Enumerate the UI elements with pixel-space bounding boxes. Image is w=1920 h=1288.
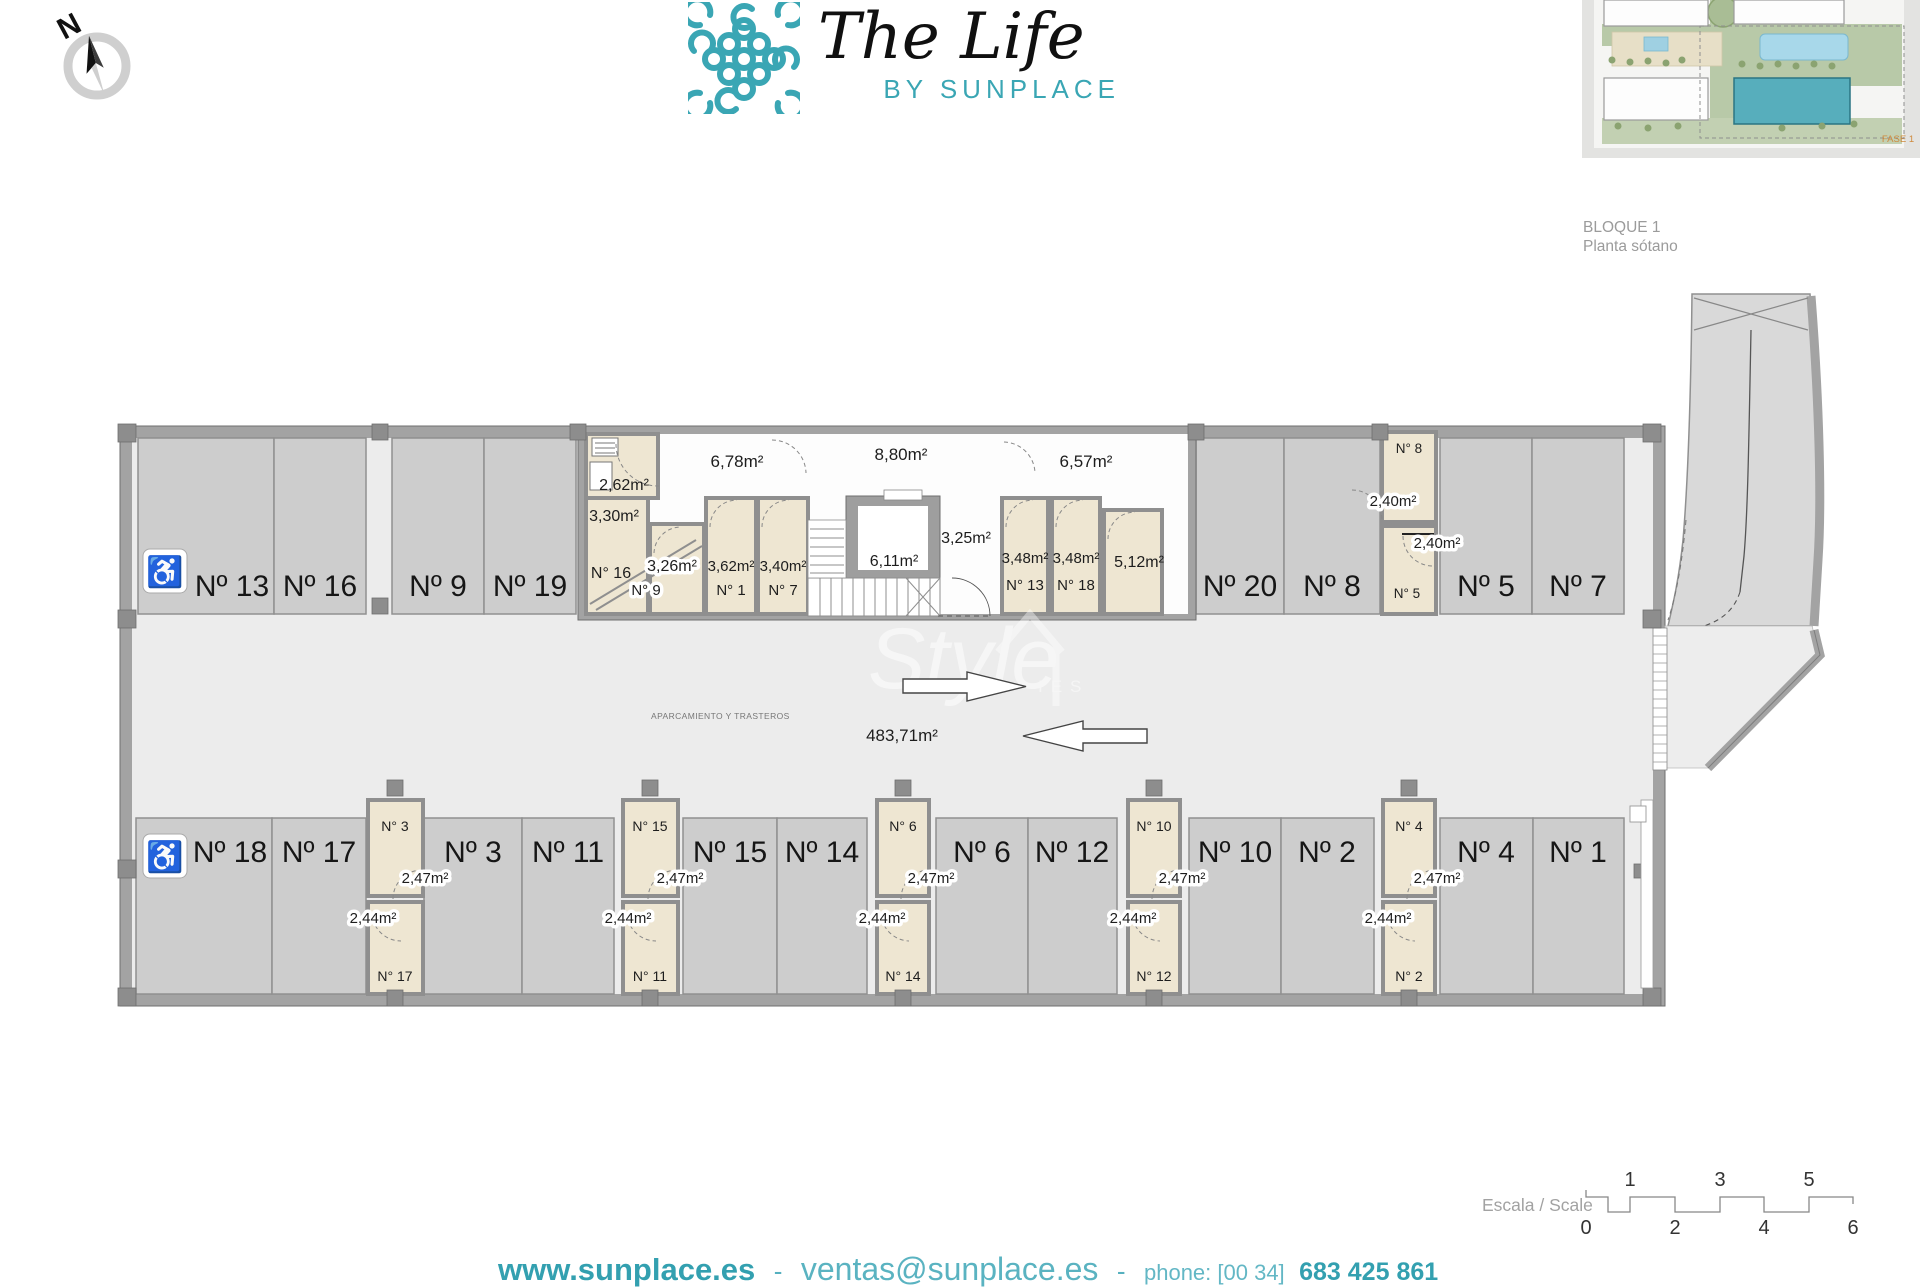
svg-text:2,47m²: 2,47m²	[1159, 870, 1206, 887]
svg-text:6: 6	[1847, 1217, 1858, 1239]
svg-text:N° 16: N° 16	[591, 565, 631, 582]
svg-text:3,48m²: 3,48m²	[1002, 550, 1049, 567]
svg-text:N° 13: N° 13	[1006, 577, 1044, 594]
scale-bar: Escala / Scale 1 3 5 0 2 4 6	[1482, 1169, 1859, 1239]
footer-email: ventas@sunplace.es	[801, 1251, 1099, 1288]
svg-text:6,78m²: 6,78m²	[711, 452, 764, 471]
parking-label: Nº 13	[195, 570, 269, 603]
svg-text:N° 15: N° 15	[632, 818, 667, 834]
svg-text:483,71m²: 483,71m²	[866, 726, 938, 745]
svg-text:4: 4	[1758, 1217, 1769, 1239]
svg-text:2,47m²: 2,47m²	[1414, 870, 1461, 887]
svg-text:N° 18: N° 18	[1057, 577, 1095, 594]
floor-name: Planta sótano	[1583, 237, 1678, 256]
parking-label: Nº 5	[1457, 570, 1515, 603]
svg-text:N° 9: N° 9	[631, 582, 660, 599]
parking-label: Nº 17	[282, 836, 356, 869]
svg-text:IES: IES	[1038, 677, 1089, 696]
svg-text:3,62m²: 3,62m²	[708, 558, 755, 575]
wheelchair-icon: ♿	[146, 839, 183, 874]
brand-logo: The Life BY SUNPLACE	[688, 2, 1120, 114]
handicap-badge-bottom: ♿	[143, 834, 187, 878]
svg-text:6,11m²: 6,11m²	[870, 553, 919, 570]
svg-text:N° 11: N° 11	[633, 968, 667, 984]
parking-label: Nº 1	[1549, 836, 1607, 869]
north-compass: N	[50, 2, 160, 120]
parking-label: Nº 20	[1203, 570, 1277, 603]
parking-label: Nº 16	[283, 570, 357, 603]
svg-text:3,25m²: 3,25m²	[941, 530, 991, 547]
handicap-badge-top: ♿	[143, 549, 187, 593]
svg-text:2,40m²: 2,40m²	[1370, 493, 1417, 510]
footer-separator: -	[1117, 1256, 1126, 1287]
parking-label: Nº 4	[1457, 836, 1515, 869]
footer-phone-label: phone: [00 34]	[1144, 1260, 1285, 1286]
svg-text:2,47m²: 2,47m²	[657, 870, 704, 887]
svg-text:2: 2	[1669, 1217, 1680, 1239]
parking-label: Nº 19	[493, 570, 567, 603]
svg-text:2,44m²: 2,44m²	[605, 910, 652, 927]
svg-text:Escala / Scale: Escala / Scale	[1482, 1195, 1593, 1215]
footer-website: www.sunplace.es	[498, 1252, 755, 1288]
site-plan-thumbnail: FASE 1	[1582, 0, 1920, 172]
svg-text:N° 6: N° 6	[889, 818, 917, 834]
svg-text:N° 5: N° 5	[1394, 586, 1420, 601]
svg-text:3,48m²: 3,48m²	[1053, 550, 1100, 567]
svg-text:5,12m²: 5,12m²	[1114, 554, 1164, 571]
ramp-grating	[1653, 628, 1667, 770]
footer-phone-number: 683 425 861	[1299, 1258, 1438, 1287]
contact-footer: www.sunplace.es - ventas@sunplace.es - p…	[498, 1251, 1438, 1288]
svg-text:N° 1: N° 1	[716, 582, 745, 599]
svg-text:N° 8: N° 8	[1396, 441, 1422, 456]
ramp-vestibule	[1665, 626, 1820, 768]
parking-label: Nº 11	[532, 836, 604, 869]
core-block: 2,62m² 3,30m² N° 16 3,26m² N° 9 6,78m² 3…	[578, 426, 1196, 620]
svg-text:N° 4: N° 4	[1395, 818, 1423, 834]
svg-text:N° 2: N° 2	[1395, 968, 1423, 984]
svg-text:N° 10: N° 10	[1136, 818, 1171, 834]
parking-label: Nº 12	[1035, 836, 1109, 869]
svg-text:N° 17: N° 17	[377, 968, 412, 984]
sheet-title: BLOQUE 1 Planta sótano	[1583, 218, 1678, 256]
svg-text:1: 1	[1624, 1169, 1635, 1191]
knot-icon	[688, 2, 800, 114]
footer-separator: -	[774, 1256, 783, 1287]
floor-plan-canvas: Nº 13 Nº 16 Nº 9 Nº 19 Nº 20 Nº 8 Nº 5 N…	[0, 0, 1920, 1280]
svg-text:6,57m²: 6,57m²	[1060, 452, 1113, 471]
svg-text:2,44m²: 2,44m²	[350, 910, 397, 927]
parking-label: Nº 3	[444, 836, 502, 869]
svg-text:2,47m²: 2,47m²	[908, 870, 955, 887]
brand-subtitle: BY SUNPLACE	[818, 74, 1120, 105]
wheelchair-icon: ♿	[146, 554, 183, 589]
svg-text:3,26m²: 3,26m²	[647, 558, 697, 575]
compass-ring	[68, 37, 126, 95]
parking-label: Nº 14	[785, 836, 859, 869]
svg-text:2,40m²: 2,40m²	[1414, 535, 1461, 552]
svg-text:2,47m²: 2,47m²	[402, 870, 449, 887]
parking-label: Nº 2	[1298, 836, 1356, 869]
svg-text:N° 7: N° 7	[768, 582, 797, 599]
site-highlighted-block	[1734, 78, 1850, 124]
svg-text:N° 12: N° 12	[1136, 968, 1171, 984]
svg-text:0: 0	[1580, 1217, 1591, 1239]
parking-label: Nº 7	[1549, 570, 1607, 603]
svg-text:2,44m²: 2,44m²	[1110, 910, 1157, 927]
parking-label: Nº 18	[193, 836, 267, 869]
parking-label: Nº 8	[1303, 570, 1361, 603]
svg-text:8,80m²: 8,80m²	[875, 445, 928, 464]
svg-text:5: 5	[1803, 1169, 1814, 1191]
parking-label: Nº 6	[953, 836, 1011, 869]
svg-text:2,62m²: 2,62m²	[599, 477, 649, 494]
brand-title: The Life	[818, 2, 1120, 72]
svg-text:N° 14: N° 14	[885, 968, 920, 984]
svg-text:3: 3	[1714, 1169, 1725, 1191]
block-name: BLOQUE 1	[1583, 218, 1678, 237]
svg-text:3,40m²: 3,40m²	[760, 558, 807, 575]
svg-text:3,30m²: 3,30m²	[589, 508, 639, 525]
svg-text:2,44m²: 2,44m²	[859, 910, 906, 927]
parking-label: Nº 9	[409, 570, 467, 603]
parking-label: Nº 10	[1198, 836, 1272, 869]
svg-text:APARCAMIENTO Y TRASTEROS: APARCAMIENTO Y TRASTEROS	[651, 711, 790, 721]
parking-label: Nº 15	[693, 836, 767, 869]
entrance-ramp	[1668, 294, 1820, 626]
svg-text:N° 3: N° 3	[381, 818, 409, 834]
svg-text:2,44m²: 2,44m²	[1365, 910, 1412, 927]
phase-label: FASE 1	[1882, 134, 1914, 145]
